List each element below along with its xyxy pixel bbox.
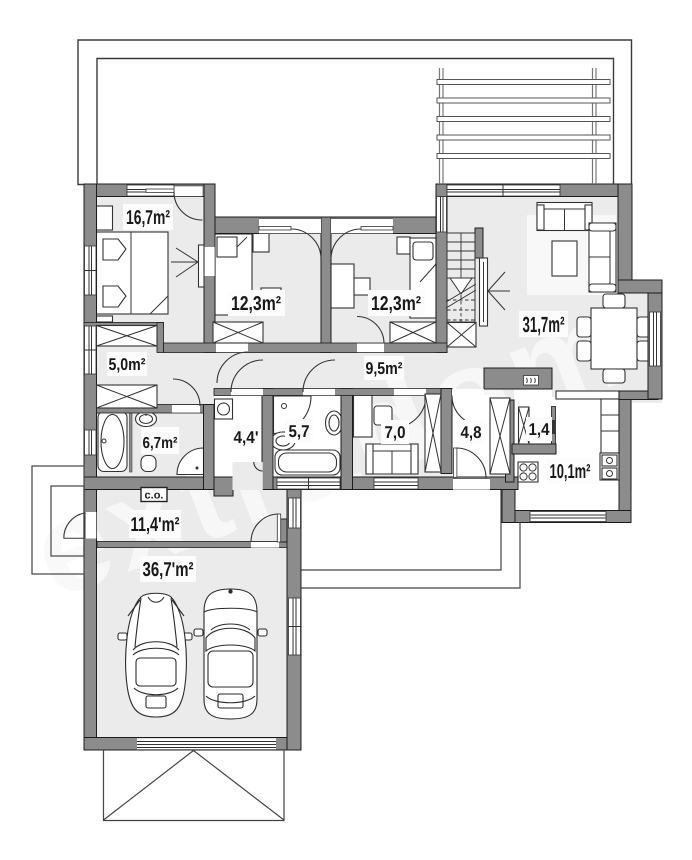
svg-text:c.o.: c.o.	[145, 490, 164, 502]
svg-text:36,7ʹm²: 36,7ʹm²	[143, 559, 194, 581]
svg-text:11,4ʹm²: 11,4ʹm²	[131, 514, 180, 536]
svg-text:16,7m²: 16,7m²	[126, 207, 170, 229]
svg-text:5,7: 5,7	[289, 422, 310, 441]
svg-text:5,0m²: 5,0m²	[109, 355, 146, 374]
svg-text:10,1m²: 10,1m²	[550, 461, 591, 483]
svg-text:31,7m²: 31,7m²	[523, 312, 565, 337]
svg-text:6,7m²: 6,7m²	[143, 435, 178, 452]
svg-text:1,4: 1,4	[529, 420, 550, 439]
svg-text:12,3m²: 12,3m²	[231, 293, 281, 315]
svg-text:4,8: 4,8	[461, 423, 482, 442]
svg-text:4,4ʹ: 4,4ʹ	[234, 428, 259, 447]
svg-text:12,3m²: 12,3m²	[371, 293, 421, 315]
svg-text:7,0: 7,0	[385, 423, 406, 442]
svg-text:9,5m²: 9,5m²	[366, 359, 403, 378]
